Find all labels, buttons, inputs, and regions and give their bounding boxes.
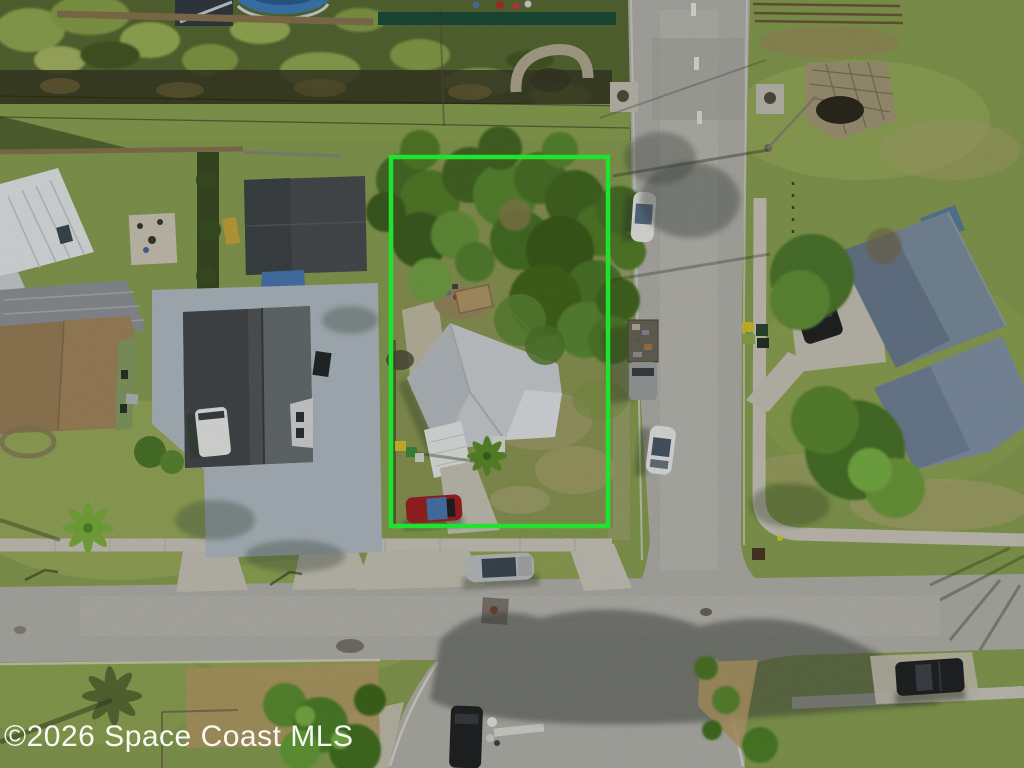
aerial-scene: ©2026 Space Coast MLS [0, 0, 1024, 768]
mls-watermark: ©2026 Space Coast MLS [4, 720, 353, 753]
photo-grain-overlay [0, 0, 1024, 768]
aerial-listing-photo: ©2026 Space Coast MLS [0, 0, 1024, 768]
